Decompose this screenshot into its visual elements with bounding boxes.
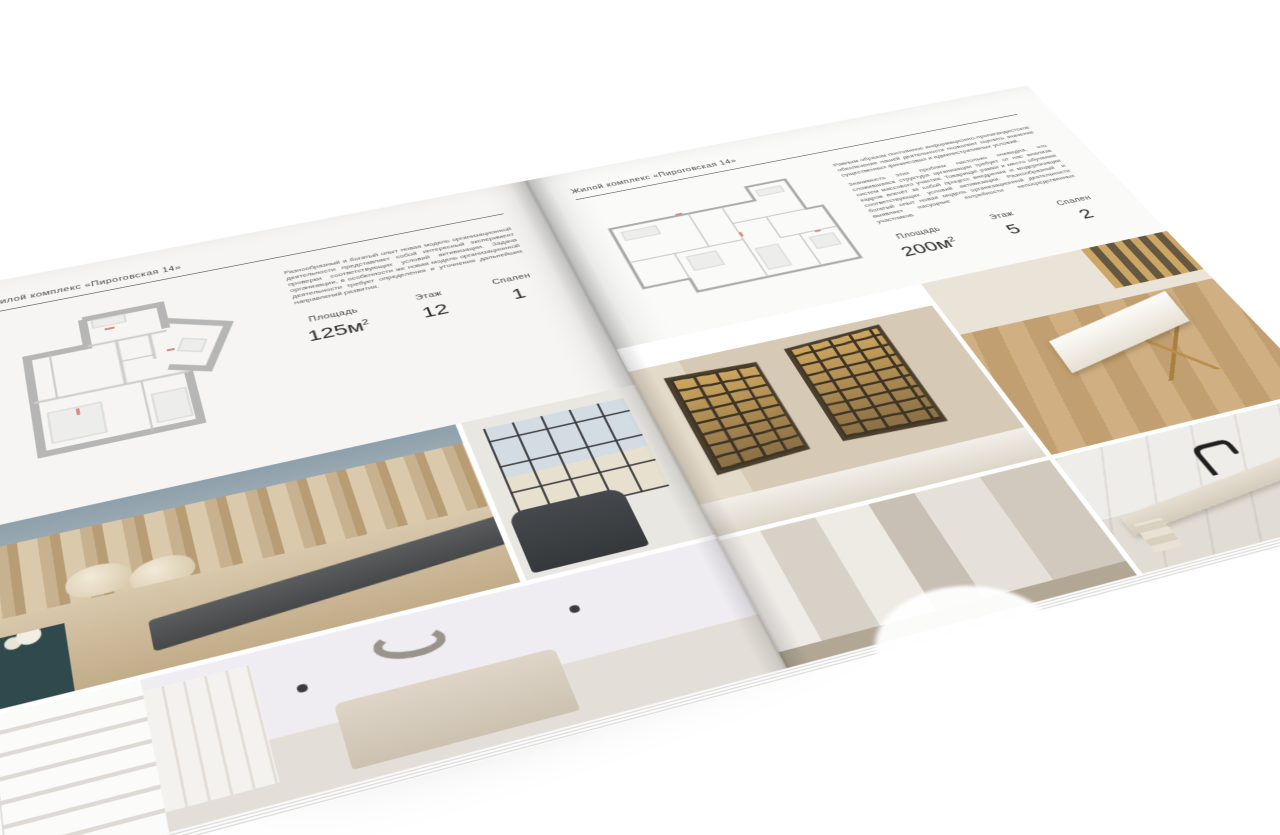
wall-lamp-shape [568, 604, 581, 613]
spec-bedrooms-value: 1 [496, 282, 542, 305]
floor-plan-125-drawing [0, 271, 310, 484]
spec-bedrooms: Спален 1 [491, 272, 542, 305]
wall-wreath-decor [371, 623, 449, 664]
spec-bedrooms-value: 2 [1063, 203, 1109, 224]
spec-floor: Этаж 5 [988, 211, 1031, 239]
spec-area: Площадь 125м2 [302, 306, 373, 346]
spec-floor-label: Этаж [414, 290, 443, 302]
open-brochure: Жилой комплекс «Пироговская 14» [0, 86, 1280, 835]
wall-lamp-shape [295, 684, 308, 694]
spec-floor-value: 5 [996, 220, 1031, 239]
photo-backdrop: Жилой комплекс «Пироговская 14» [0, 0, 1280, 835]
left-page-text-column: Разнообразный и богатый опыт новая модел… [282, 223, 579, 415]
spec-bedrooms: Спален 2 [1055, 195, 1109, 225]
kids-bed-shape [333, 648, 580, 770]
spec-floor-label: Этаж [988, 211, 1016, 222]
right-page-text-column: Равным образом постоянное информационно-… [830, 122, 1114, 261]
floor-plan-125 [0, 271, 310, 484]
wardrobe-shape [143, 665, 279, 813]
towel-shape [1133, 517, 1184, 553]
spec-floor-value: 12 [419, 300, 452, 321]
glass-cabinet-shape [664, 362, 810, 475]
spec-floor: Этаж 12 [414, 290, 452, 322]
spec-area: Площадь 200м2 [890, 225, 963, 260]
glass-cabinet-shape [784, 325, 948, 442]
